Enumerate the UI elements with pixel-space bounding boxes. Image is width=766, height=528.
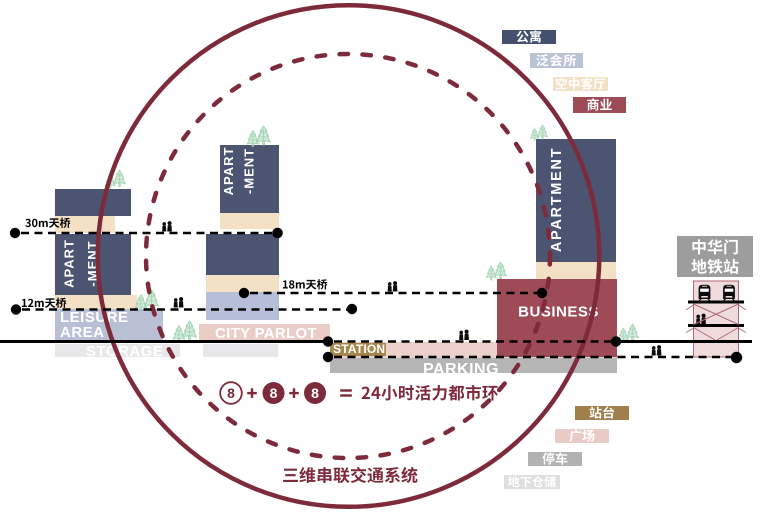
svg-text:8: 8 (227, 385, 235, 401)
svg-text:8: 8 (311, 385, 319, 401)
svg-text:PARKING: PARKING (423, 361, 499, 378)
svg-text:8: 8 (270, 385, 278, 401)
svg-text:APART: APART (221, 147, 236, 196)
svg-text:APART: APART (62, 239, 77, 288)
svg-text:CITY PARLOT: CITY PARLOT (215, 325, 317, 342)
svg-text:STORAGE: STORAGE (86, 343, 163, 360)
svg-text:APARTMENT: APARTMENT (549, 147, 565, 252)
svg-text:BUSINESS: BUSINESS (518, 304, 599, 321)
svg-text:-MENT: -MENT (242, 148, 257, 194)
svg-text:AREA: AREA (60, 324, 105, 341)
svg-text:STATION: STATION (333, 342, 385, 356)
